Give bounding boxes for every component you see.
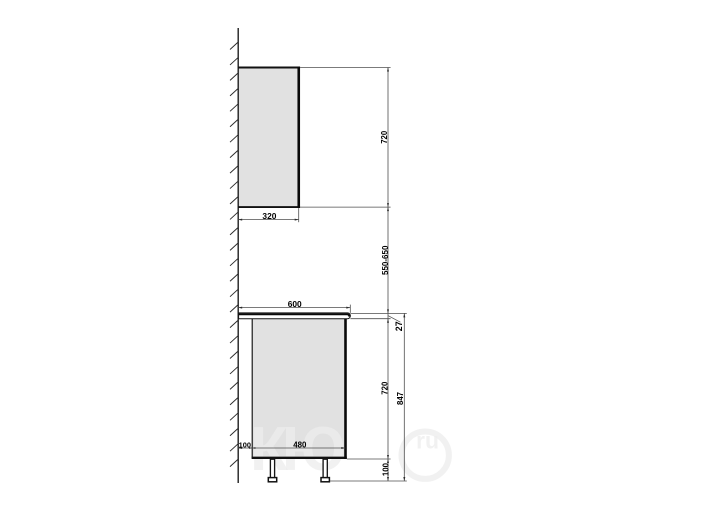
svg-text:720: 720 <box>380 130 389 144</box>
svg-text:720: 720 <box>380 381 389 395</box>
svg-text:847: 847 <box>396 392 405 405</box>
svg-text:ru: ru <box>416 428 439 454</box>
svg-text:100: 100 <box>239 440 251 449</box>
svg-text:320: 320 <box>262 211 276 221</box>
svg-text:27: 27 <box>394 321 404 331</box>
svg-text:480: 480 <box>293 441 307 450</box>
svg-text:100: 100 <box>381 462 390 476</box>
svg-text:550-650: 550-650 <box>381 245 390 275</box>
svg-text:600: 600 <box>288 299 302 309</box>
